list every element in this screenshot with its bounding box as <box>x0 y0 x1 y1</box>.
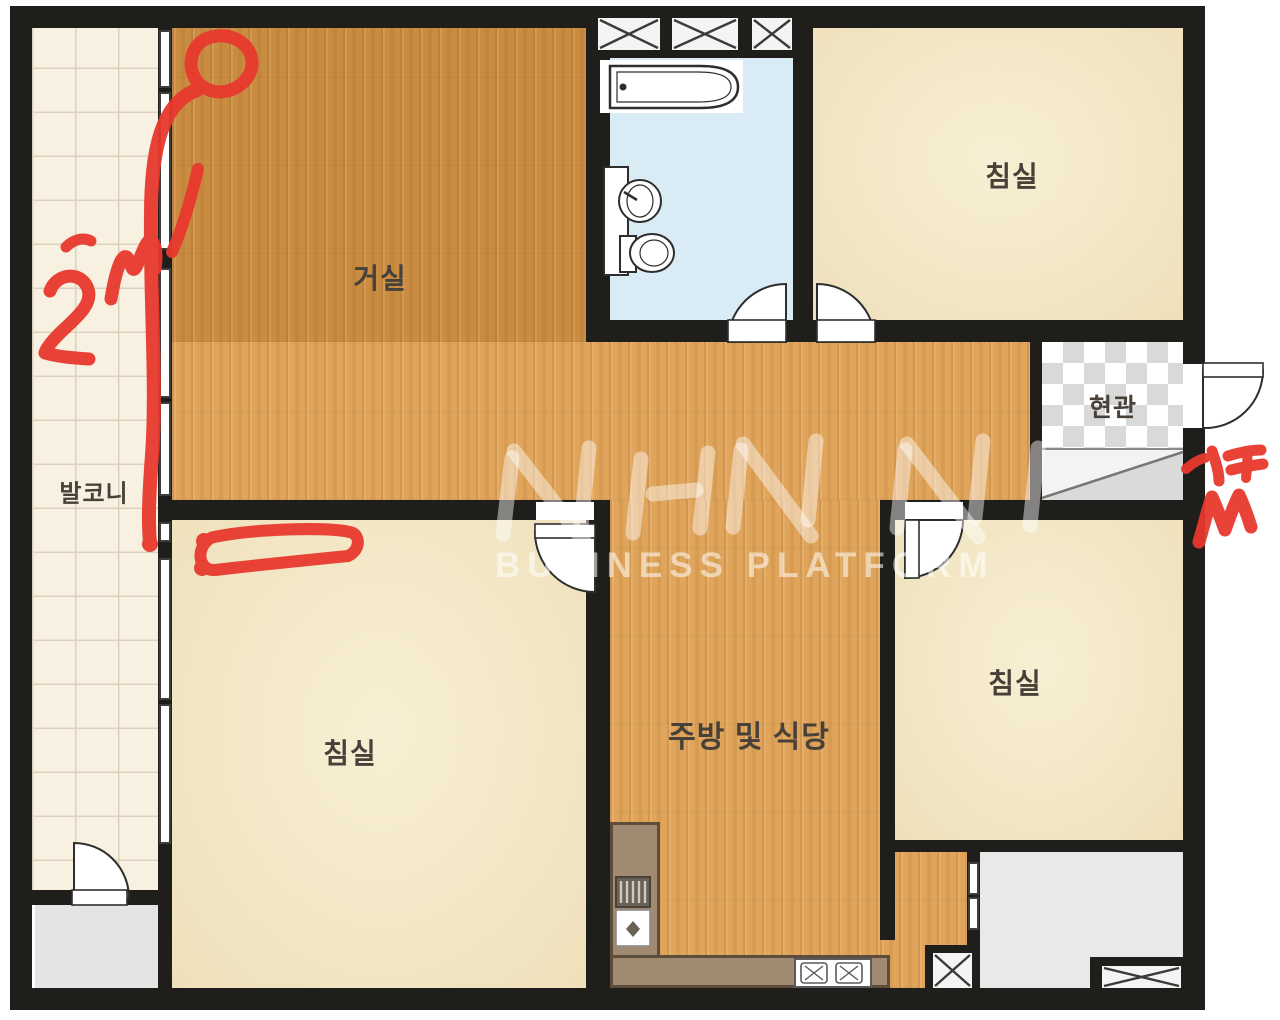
fridge-icon <box>616 877 650 907</box>
toilet-icon <box>620 234 674 272</box>
plan-symbols <box>0 0 1280 1020</box>
watermark-text: BUSINESS PLATFORM <box>495 546 994 586</box>
entrance-exit-door-leaf <box>1203 363 1263 377</box>
annotation-dash <box>66 239 91 247</box>
annotation-scribble-right <box>1186 450 1263 542</box>
annotation-box-highlight <box>200 529 357 570</box>
floorplan: 거실 침실 침실 침실 주방 및 식당 발코니 현관 BUSINESS PLAT… <box>0 0 1280 1020</box>
room-label-kitchen: 주방 및 식당 <box>668 712 830 756</box>
room-label-balcony: 발코니 <box>59 474 128 509</box>
annotation-circle-mark <box>191 36 252 92</box>
room-label-bedroom-bottom-left: 침실 <box>323 732 377 772</box>
annotation-2 <box>45 276 89 359</box>
duct-x-icon <box>600 20 1179 986</box>
stove-icon <box>795 959 871 987</box>
bedroom-tr-door-leaf <box>817 320 875 342</box>
entrance-exit-door <box>1203 370 1263 428</box>
balcony-door-leaf <box>72 890 127 905</box>
bathroom-door-leaf <box>728 320 786 342</box>
annotation-slash <box>172 169 198 252</box>
annotation-measure-line <box>149 90 197 543</box>
bathtub-icon <box>600 60 743 113</box>
room-label-entrance: 현관 <box>1089 388 1137 424</box>
room-label-living: 거실 <box>353 257 407 297</box>
sink-icon <box>616 910 650 946</box>
room-label-bedroom-top-right: 침실 <box>985 155 1039 195</box>
doors <box>72 284 1263 905</box>
entrance-step-detail <box>1042 449 1183 500</box>
room-label-bedroom-right: 침실 <box>988 662 1042 702</box>
